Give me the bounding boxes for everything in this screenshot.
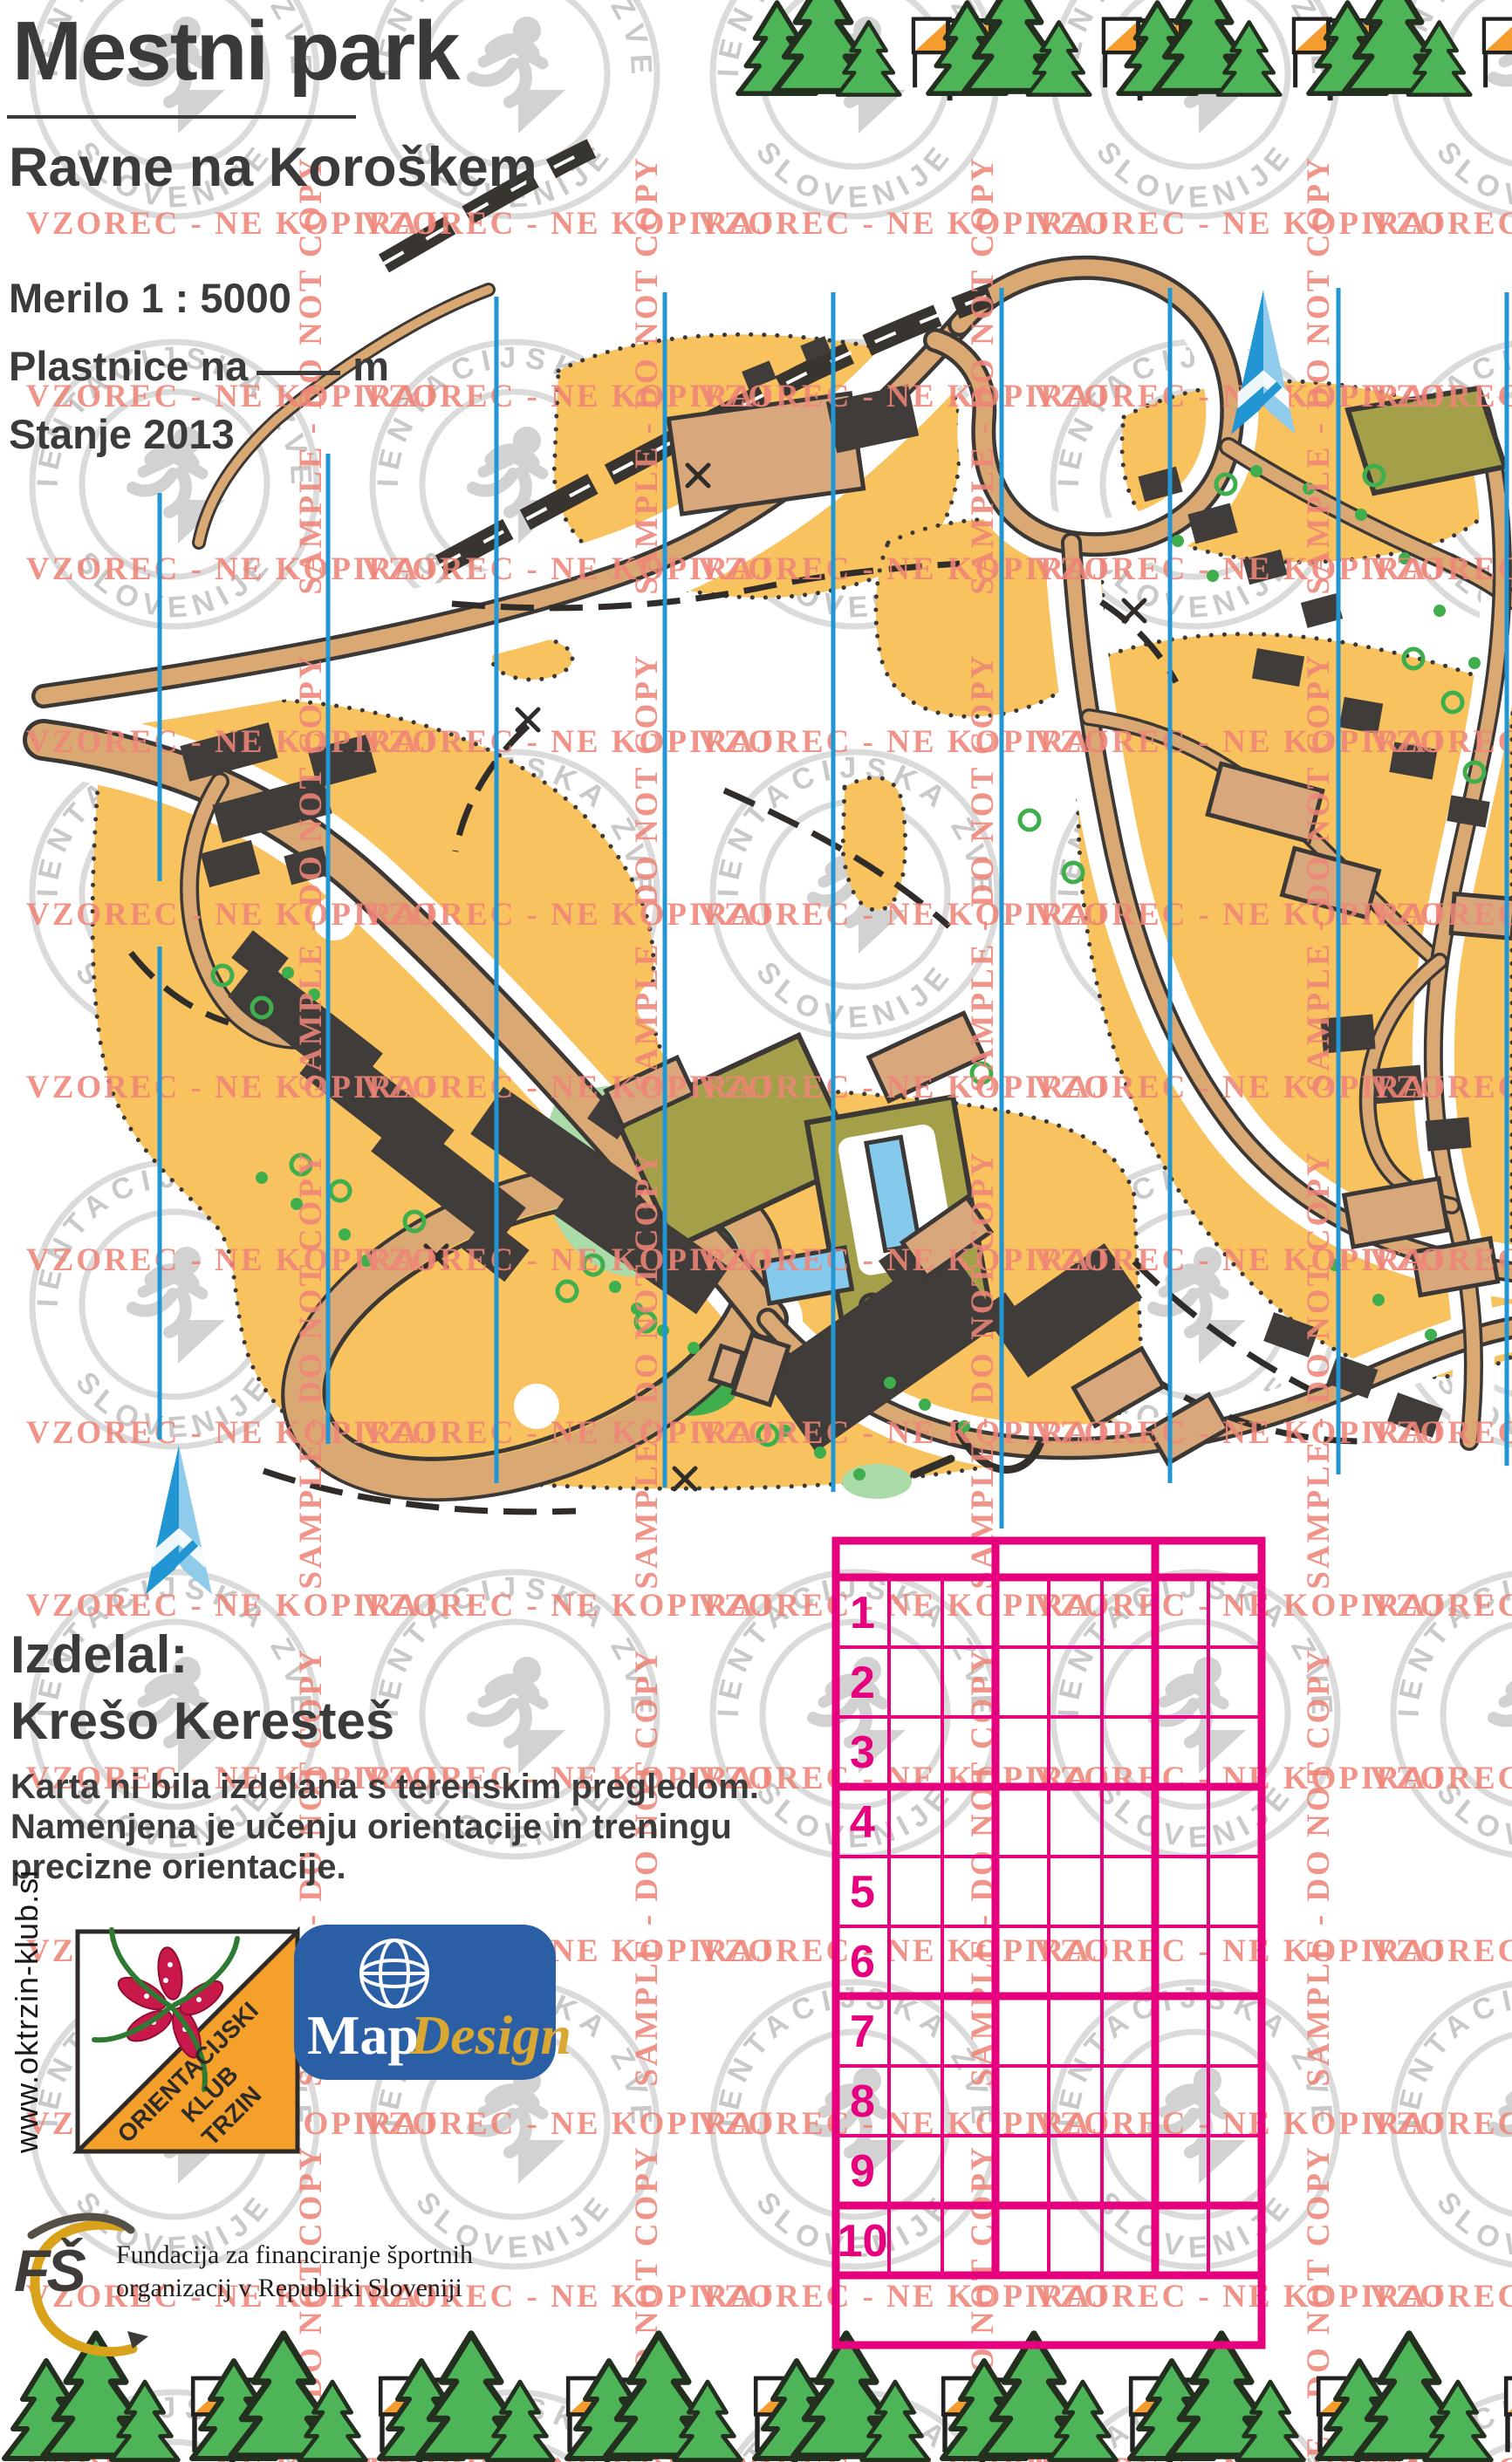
green-tree-dot xyxy=(609,1281,621,1293)
green-tree-dot xyxy=(1355,509,1367,521)
watermark-vzorec xyxy=(1370,551,1512,587)
fs-text-line1: Fundacija za financiranje športnih xyxy=(116,2240,473,2269)
page-title: Mestni park xyxy=(12,3,458,99)
control-number: 1 xyxy=(850,1588,875,1638)
watermark-sample xyxy=(629,1647,665,2086)
green-tree-dot xyxy=(919,1399,931,1411)
watermark-sample xyxy=(629,155,665,594)
watermark-vzorec xyxy=(1370,1588,1512,1624)
watermark-vzorec xyxy=(1370,1761,1512,1796)
green-tree-dot xyxy=(1372,1294,1385,1306)
watermark-sample xyxy=(1301,1150,1337,1589)
author-name: Krešo Keresteš xyxy=(10,1691,394,1751)
watermark-sample xyxy=(965,155,1001,594)
green-tree-dot xyxy=(256,1172,268,1184)
map-sheet: ORIENTACIJSKA ZVEZA SLOVENIJE VZOREC - N… xyxy=(0,0,1512,2462)
control-number: 9 xyxy=(850,2146,875,2197)
green-tree-dot xyxy=(1425,1329,1437,1341)
orienteering-club-trzin-logo: ORIENTACIJSKI KLUB TRZIN xyxy=(78,1930,298,2151)
green-tree-dot xyxy=(1172,535,1184,547)
control-number: 7 xyxy=(850,2007,875,2057)
green-tree-dot xyxy=(339,1228,351,1241)
watermark-sample xyxy=(1301,653,1337,1091)
green-tree-dot xyxy=(853,1468,865,1481)
watermark-sample xyxy=(293,1150,329,1589)
watermark-vzorec xyxy=(1370,1415,1512,1451)
watermark-sample xyxy=(293,653,329,1091)
made-by-label: Izdelal: xyxy=(10,1624,188,1685)
green-tree-ring xyxy=(1020,810,1039,830)
watermark-vzorec xyxy=(1370,1933,1512,1969)
watermark-vzorec xyxy=(1370,897,1512,933)
fs-foundation-text: Fundacija za financiranje športnihorgani… xyxy=(116,2239,473,2305)
watermark-sample xyxy=(965,653,1001,1091)
mapdesign-word2: Design xyxy=(409,2004,571,2066)
fs-logo-abbr: FŠ xyxy=(14,2237,86,2304)
watermark-vzorec xyxy=(1370,206,1512,242)
control-number: 5 xyxy=(850,1867,875,1918)
control-number: 4 xyxy=(850,1797,875,1848)
contour-prefix: Plastnice na xyxy=(9,343,248,389)
fs-text-line2: organizacij v Republiki Sloveniji xyxy=(116,2274,462,2302)
watermark-vzorec xyxy=(1370,1242,1512,1278)
control-number: 8 xyxy=(850,2076,875,2127)
contour-blank-line xyxy=(257,366,340,375)
watermark-sample xyxy=(1301,1647,1337,2086)
control-number: 2 xyxy=(850,1658,875,1708)
watermark-vzorec xyxy=(1370,1070,1512,1105)
green-tree-dot xyxy=(884,1377,896,1389)
contour-interval-label: Plastnice nam xyxy=(9,342,389,390)
bottom-decoration-row xyxy=(4,2334,1512,2462)
title-divider xyxy=(7,115,356,119)
page-subtitle: Ravne na Koroškem xyxy=(9,136,537,199)
decor-unit xyxy=(1317,2334,1512,2462)
watermark-sample xyxy=(629,1150,665,1589)
watermark-vzorec xyxy=(1370,2279,1512,2315)
watermark-vzorec xyxy=(1370,2106,1512,2142)
green-tree-dot xyxy=(282,967,294,979)
watermark-sample xyxy=(629,653,665,1091)
mapdesign-logo: Map Design xyxy=(294,1925,571,2080)
club-website: www.oktrzin-klub.si xyxy=(9,1870,45,2153)
watermark-sample xyxy=(1301,155,1337,594)
control-number: 3 xyxy=(850,1727,875,1778)
watermark-vzorec xyxy=(1370,379,1512,414)
green-tree-dot xyxy=(1468,657,1481,669)
decor-unit xyxy=(1309,0,1512,100)
watermark-sample xyxy=(965,1150,1001,1589)
green-tree-dot xyxy=(688,1342,700,1354)
green-tree-dot xyxy=(1250,465,1262,477)
map-note-line1: Karta ni bila izdelana s terenskim pregl… xyxy=(10,1768,759,1807)
map-note-line2: Namenjena je učenju orientacije in treni… xyxy=(10,1808,732,1847)
control-number: 10 xyxy=(838,2216,888,2267)
map-status-label: Stanje 2013 xyxy=(9,410,235,458)
watermark-vzorec xyxy=(1370,724,1512,760)
contour-unit: m xyxy=(352,343,389,389)
building-dark xyxy=(1426,1117,1472,1151)
green-tree-dot xyxy=(1433,605,1446,617)
mapdesign-word1: Map xyxy=(307,2004,419,2066)
map-note-line3: precizne orientacije. xyxy=(10,1848,346,1887)
map-scale-label: Merilo 1 : 5000 xyxy=(9,274,291,322)
control-number: 6 xyxy=(850,1937,875,1987)
